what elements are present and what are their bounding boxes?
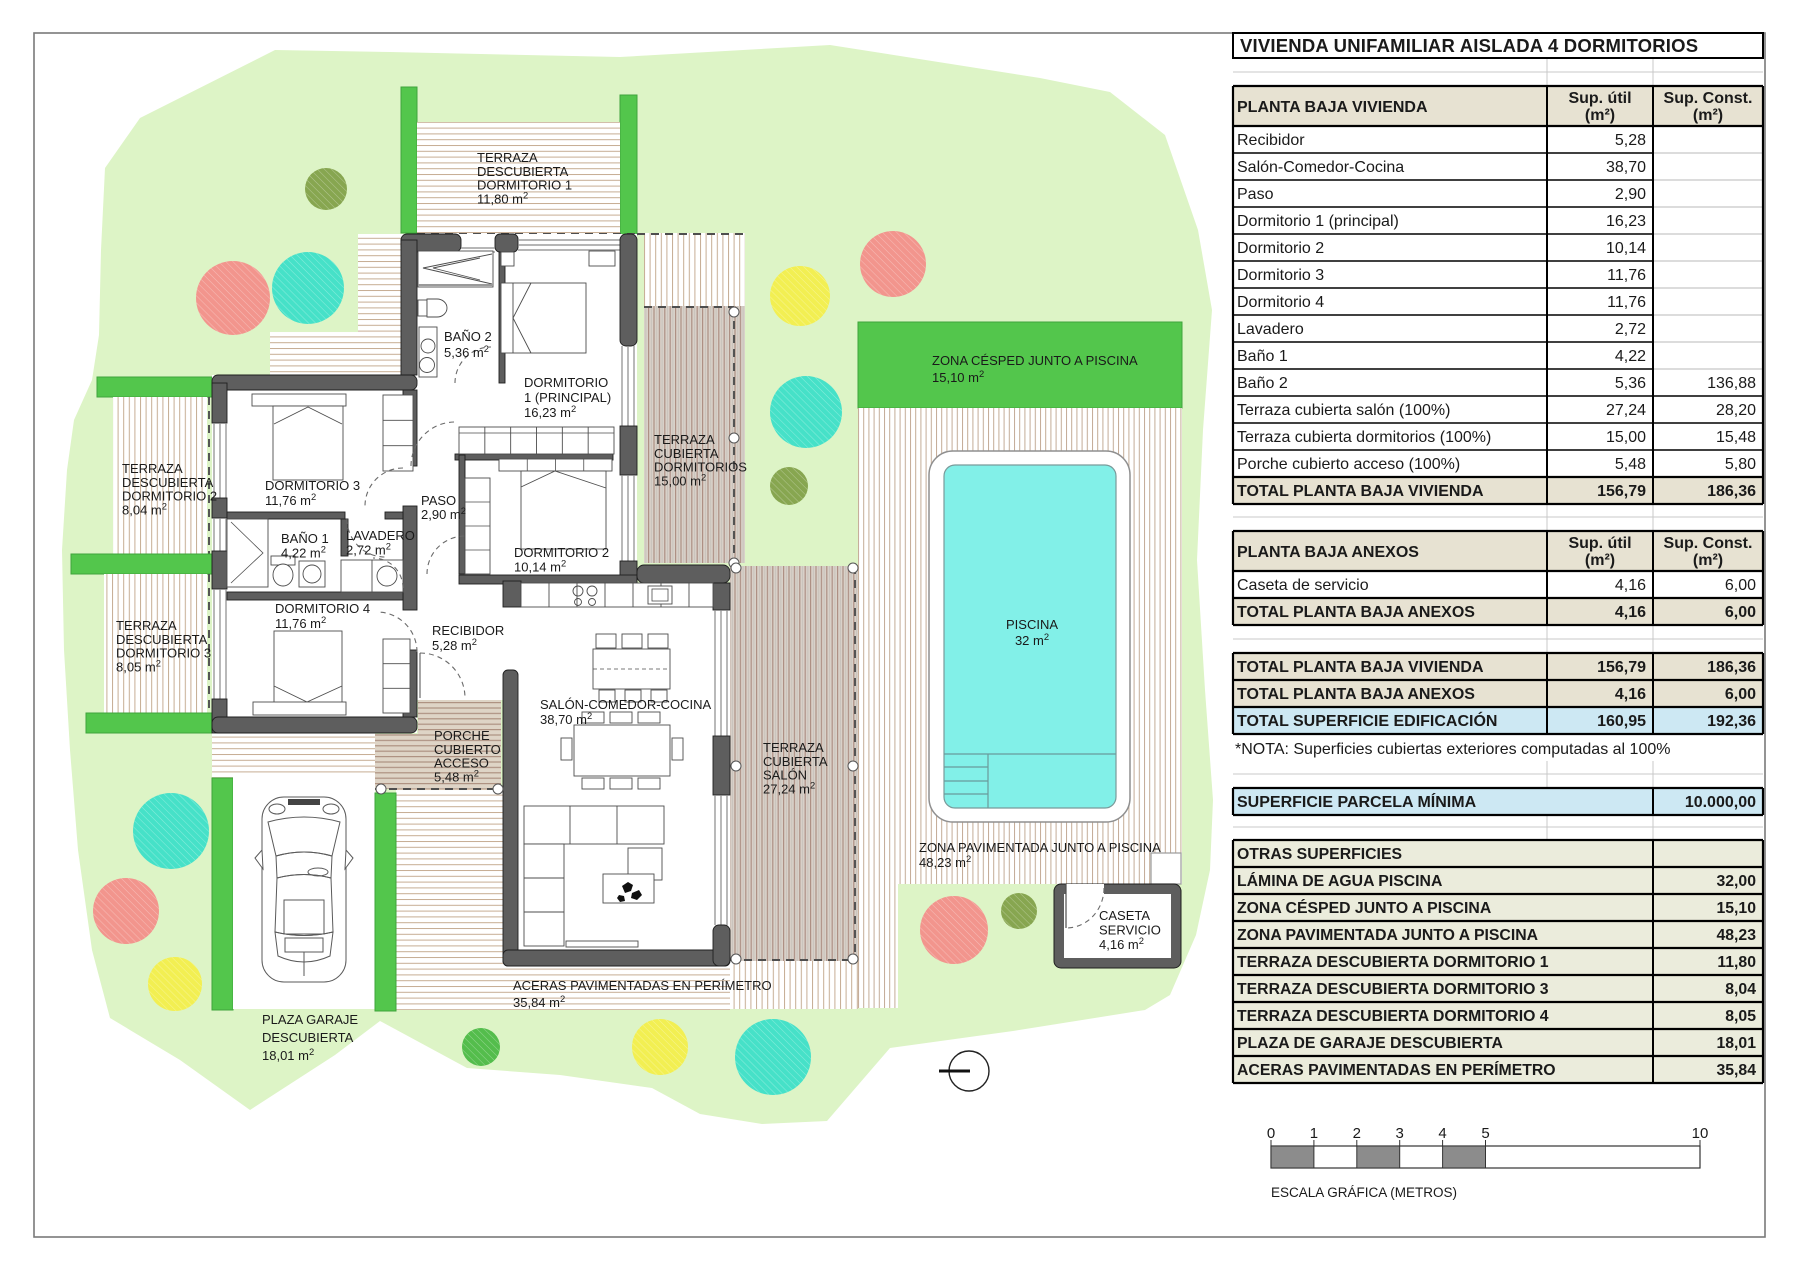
svg-text:11,76: 11,76: [1607, 267, 1646, 284]
svg-text:160,95: 160,95: [1597, 713, 1646, 730]
svg-text:5,80: 5,80: [1725, 456, 1756, 473]
svg-text:4,22: 4,22: [1615, 348, 1646, 365]
svg-text:TOTAL PLANTA BAJA ANEXOS: TOTAL PLANTA BAJA ANEXOS: [1237, 604, 1475, 621]
svg-text:*NOTA: Superficies cubiertas e: *NOTA: Superficies cubiertas exteriores …: [1235, 741, 1670, 758]
svg-text:DORMITORIO 2: DORMITORIO 2: [122, 489, 217, 504]
svg-text:10.000,00: 10.000,00: [1685, 794, 1756, 811]
svg-text:5,28 m2: 5,28 m2: [432, 636, 477, 653]
svg-text:48,23: 48,23: [1716, 927, 1756, 944]
svg-text:5,36 m2: 5,36 m2: [444, 343, 489, 360]
svg-text:10,14 m2: 10,14 m2: [514, 558, 566, 575]
svg-text:Sup. útil: Sup. útil: [1568, 90, 1631, 107]
svg-text:PISCINA: PISCINA: [1006, 617, 1058, 632]
svg-text:3: 3: [1396, 1125, 1404, 1142]
svg-text:Caseta de servicio: Caseta de servicio: [1237, 577, 1369, 594]
svg-text:28,20: 28,20: [1716, 402, 1756, 419]
svg-text:PLANTA BAJA VIVIENDA: PLANTA BAJA VIVIENDA: [1237, 99, 1428, 116]
svg-text:VIVIENDA UNIFAMILIAR AISLADA 4: VIVIENDA UNIFAMILIAR AISLADA 4 DORMITORI…: [1240, 35, 1698, 56]
svg-text:PLAZA DE GARAJE DESCUBIERTA: PLAZA DE GARAJE DESCUBIERTA: [1237, 1035, 1503, 1052]
svg-text:18,01: 18,01: [1716, 1035, 1756, 1052]
svg-text:6,00: 6,00: [1725, 686, 1756, 703]
svg-text:38,70 m2: 38,70 m2: [540, 710, 592, 727]
svg-text:(m²): (m²): [1693, 107, 1723, 124]
svg-text:8,04: 8,04: [1725, 981, 1756, 998]
svg-text:DESCUBIERTA: DESCUBIERTA: [116, 632, 208, 647]
svg-text:ACERAS PAVIMENTADAS EN PERÍMET: ACERAS PAVIMENTADAS EN PERÍMETRO: [513, 978, 772, 993]
svg-text:8,05 m2: 8,05 m2: [116, 657, 161, 674]
svg-text:(m²): (m²): [1585, 552, 1615, 569]
svg-text:10: 10: [1692, 1125, 1709, 1142]
svg-text:ESCALA GRÁFICA (METROS): ESCALA GRÁFICA (METROS): [1271, 1185, 1457, 1200]
svg-text:BAÑO 2: BAÑO 2: [444, 329, 492, 344]
svg-text:RECIBIDOR: RECIBIDOR: [432, 623, 504, 638]
svg-text:16,23 m2: 16,23 m2: [524, 403, 576, 420]
svg-text:156,79: 156,79: [1597, 483, 1646, 500]
svg-text:PLANTA BAJA ANEXOS: PLANTA BAJA ANEXOS: [1237, 544, 1419, 561]
svg-text:Terraza cubierta dormitorios (: Terraza cubierta dormitorios (100%): [1237, 429, 1491, 446]
svg-text:LAVADERO: LAVADERO: [346, 528, 415, 543]
svg-text:Paso: Paso: [1237, 186, 1274, 203]
svg-text:LÁMINA DE AGUA PISCINA: LÁMINA DE AGUA PISCINA: [1237, 871, 1442, 890]
svg-text:ACCESO: ACCESO: [434, 756, 489, 771]
svg-text:136,88: 136,88: [1707, 375, 1756, 392]
svg-text:192,36: 192,36: [1707, 713, 1756, 730]
svg-text:5,48 m2: 5,48 m2: [434, 767, 479, 784]
svg-text:5,48: 5,48: [1615, 456, 1646, 473]
svg-text:15,00: 15,00: [1606, 429, 1646, 446]
svg-text:2,72: 2,72: [1615, 321, 1646, 338]
svg-text:TOTAL PLANTA BAJA VIVIENDA: TOTAL PLANTA BAJA VIVIENDA: [1237, 659, 1484, 676]
svg-text:ACERAS PAVIMENTADAS EN PERÍMET: ACERAS PAVIMENTADAS EN PERÍMETRO: [1237, 1060, 1556, 1079]
svg-text:CUBIERTA: CUBIERTA: [654, 446, 719, 461]
svg-text:5,36: 5,36: [1615, 375, 1646, 392]
svg-text:2: 2: [1353, 1125, 1361, 1142]
svg-text:Sup. Const.: Sup. Const.: [1664, 535, 1753, 552]
svg-text:4,22 m2: 4,22 m2: [281, 544, 326, 561]
svg-text:15,10 m2: 15,10 m2: [932, 368, 984, 385]
svg-text:SERVICIO: SERVICIO: [1099, 923, 1161, 938]
svg-text:186,36: 186,36: [1707, 659, 1756, 676]
svg-text:ZONA PAVIMENTADA JUNTO A PISCI: ZONA PAVIMENTADA JUNTO A PISCINA: [1237, 927, 1538, 944]
svg-text:Lavadero: Lavadero: [1237, 321, 1304, 338]
svg-text:35,84: 35,84: [1716, 1062, 1756, 1079]
svg-text:6,00: 6,00: [1725, 604, 1756, 621]
svg-text:1: 1: [1310, 1125, 1318, 1142]
svg-text:186,36: 186,36: [1707, 483, 1756, 500]
svg-text:TOTAL SUPERFICIE EDIFICACIÓN: TOTAL SUPERFICIE EDIFICACIÓN: [1237, 711, 1497, 730]
svg-text:48,23 m2: 48,23 m2: [919, 853, 971, 870]
svg-text:1 (PRINCIPAL): 1 (PRINCIPAL): [524, 390, 611, 405]
svg-text:32,00: 32,00: [1716, 873, 1756, 890]
svg-text:Recibidor: Recibidor: [1237, 132, 1305, 149]
svg-text:11,76 m2: 11,76 m2: [265, 491, 316, 508]
svg-text:6,00: 6,00: [1725, 577, 1756, 594]
svg-text:Porche cubierto acceso (100%): Porche cubierto acceso (100%): [1237, 456, 1460, 473]
svg-text:TERRAZA DESCUBIERTA DORMITORIO: TERRAZA DESCUBIERTA DORMITORIO 3: [1237, 981, 1549, 998]
svg-text:DORMITORIO: DORMITORIO: [524, 375, 608, 390]
svg-text:CUBIERTA: CUBIERTA: [763, 754, 828, 769]
svg-text:TERRAZA DESCUBIERTA DORMITORIO: TERRAZA DESCUBIERTA DORMITORIO 1: [1237, 954, 1549, 971]
svg-text:2,90: 2,90: [1615, 186, 1646, 203]
svg-text:Baño 1: Baño 1: [1237, 348, 1288, 365]
svg-text:(m²): (m²): [1585, 107, 1615, 124]
svg-text:11,76 m2: 11,76 m2: [275, 614, 326, 631]
svg-text:2,72 m2: 2,72 m2: [346, 541, 391, 558]
svg-text:11,80 m2: 11,80 m2: [477, 189, 528, 206]
svg-text:ZONA PAVIMENTADA JUNTO A PISCI: ZONA PAVIMENTADA JUNTO A PISCINA: [919, 840, 1161, 855]
svg-text:4,16: 4,16: [1615, 686, 1646, 703]
svg-text:Sup. útil: Sup. útil: [1568, 535, 1631, 552]
svg-text:5,28: 5,28: [1615, 132, 1646, 149]
svg-text:Terraza cubierta salón (100%): Terraza cubierta salón (100%): [1237, 402, 1450, 419]
svg-text:PASO: PASO: [421, 493, 456, 508]
svg-text:CASETA: CASETA: [1099, 908, 1150, 923]
svg-text:4,16: 4,16: [1615, 577, 1646, 594]
svg-text:DESCUBIERTA: DESCUBIERTA: [122, 475, 214, 490]
svg-text:PLAZA GARAJE: PLAZA GARAJE: [262, 1012, 358, 1027]
svg-text:5: 5: [1481, 1125, 1489, 1142]
svg-text:2,90 m2: 2,90 m2: [421, 505, 466, 522]
svg-text:TERRAZA DESCUBIERTA DORMITORIO: TERRAZA DESCUBIERTA DORMITORIO 4: [1237, 1008, 1549, 1025]
svg-text:27,24: 27,24: [1606, 402, 1646, 419]
svg-text:TOTAL PLANTA BAJA ANEXOS: TOTAL PLANTA BAJA ANEXOS: [1237, 686, 1475, 703]
svg-text:Salón-Comedor-Cocina: Salón-Comedor-Cocina: [1237, 159, 1404, 176]
svg-text:PORCHE: PORCHE: [434, 728, 490, 743]
svg-text:27,24 m2: 27,24 m2: [763, 779, 815, 796]
svg-text:Dormitorio 1 (principal): Dormitorio 1 (principal): [1237, 213, 1399, 230]
svg-text:TOTAL PLANTA BAJA VIVIENDA: TOTAL PLANTA BAJA VIVIENDA: [1237, 483, 1484, 500]
svg-text:OTRAS SUPERFICIES: OTRAS SUPERFICIES: [1237, 846, 1402, 863]
svg-text:SUPERFICIE PARCELA MÍNIMA: SUPERFICIE PARCELA MÍNIMA: [1237, 792, 1477, 811]
svg-text:SALÓN: SALÓN: [763, 768, 807, 783]
svg-text:16,23: 16,23: [1606, 213, 1646, 230]
svg-text:0: 0: [1267, 1125, 1275, 1142]
svg-text:35,84 m2: 35,84 m2: [513, 993, 565, 1010]
svg-text:ZONA CÉSPED JUNTO A PISCINA: ZONA CÉSPED JUNTO A PISCINA: [932, 353, 1138, 368]
svg-text:11,76: 11,76: [1607, 294, 1646, 311]
svg-text:TERRAZA: TERRAZA: [116, 618, 177, 633]
svg-text:156,79: 156,79: [1597, 659, 1646, 676]
svg-text:8,05: 8,05: [1725, 1008, 1756, 1025]
svg-text:4,16 m2: 4,16 m2: [1099, 935, 1144, 952]
svg-text:ZONA CÉSPED JUNTO A PISCINA: ZONA CÉSPED JUNTO A PISCINA: [1237, 898, 1491, 917]
svg-text:DORMITORIO 3: DORMITORIO 3: [116, 646, 211, 661]
svg-text:SALÓN-COMEDOR-COCINA: SALÓN-COMEDOR-COCINA: [540, 697, 712, 712]
svg-text:CUBIERTO: CUBIERTO: [434, 742, 501, 757]
svg-text:TERRAZA: TERRAZA: [122, 461, 183, 476]
svg-text:Dormitorio 4: Dormitorio 4: [1237, 294, 1324, 311]
svg-text:Baño 2: Baño 2: [1237, 375, 1288, 392]
svg-text:15,48: 15,48: [1716, 429, 1756, 446]
svg-text:10,14: 10,14: [1606, 240, 1646, 257]
svg-text:15,00 m2: 15,00 m2: [654, 471, 706, 488]
svg-text:DESCUBIERTA: DESCUBIERTA: [262, 1030, 354, 1045]
svg-text:Dormitorio 3: Dormitorio 3: [1237, 267, 1324, 284]
svg-text:(m²): (m²): [1693, 552, 1723, 569]
svg-text:15,10: 15,10: [1716, 900, 1756, 917]
svg-text:DESCUBIERTA: DESCUBIERTA: [477, 164, 569, 179]
svg-text:11,80: 11,80: [1717, 954, 1756, 971]
svg-text:Dormitorio 2: Dormitorio 2: [1237, 240, 1324, 257]
svg-text:TERRAZA: TERRAZA: [763, 740, 824, 755]
svg-text:8,04 m2: 8,04 m2: [122, 500, 167, 517]
svg-text:TERRAZA: TERRAZA: [654, 432, 715, 447]
svg-text:38,70: 38,70: [1606, 159, 1646, 176]
svg-text:Sup. Const.: Sup. Const.: [1664, 90, 1753, 107]
svg-text:18,01 m2: 18,01 m2: [262, 1046, 314, 1063]
svg-text:4,16: 4,16: [1615, 604, 1646, 621]
svg-text:4: 4: [1438, 1125, 1446, 1142]
svg-text:TERRAZA: TERRAZA: [477, 150, 538, 165]
